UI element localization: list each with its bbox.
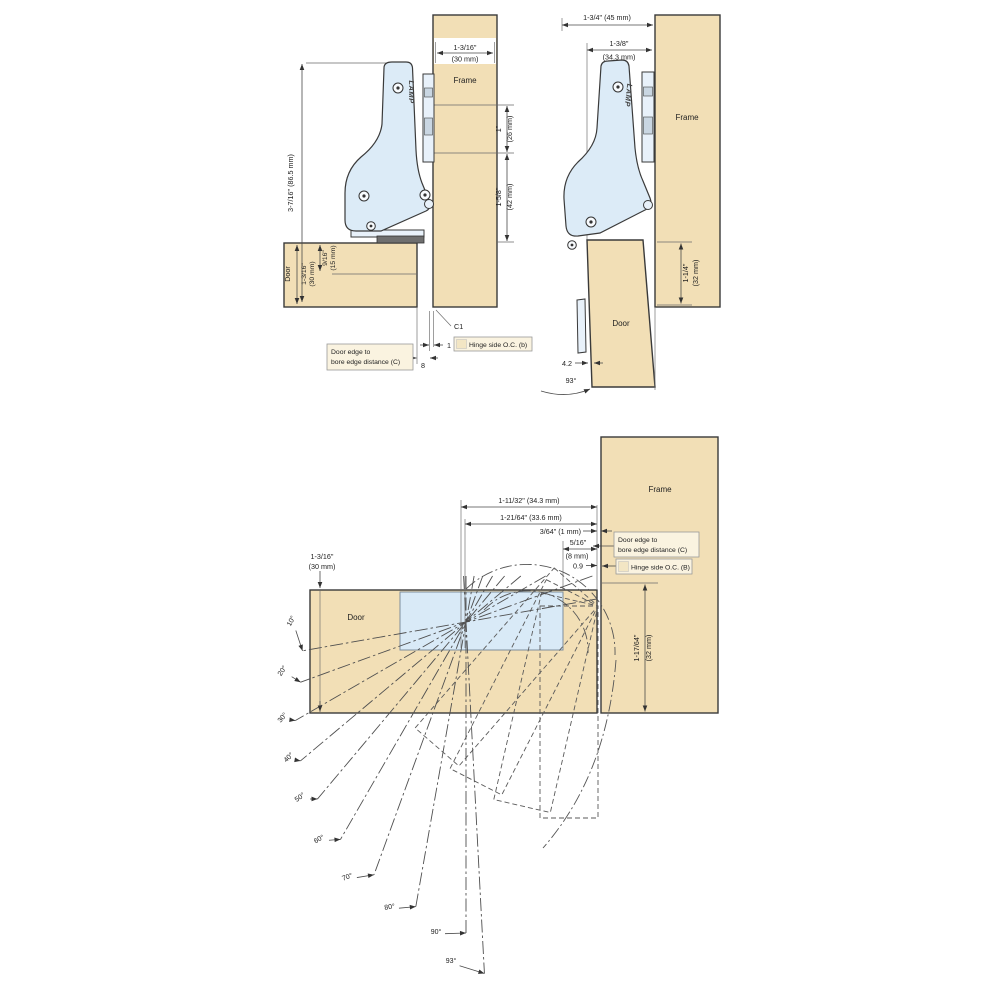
fan-angle-label: 20° <box>276 664 289 677</box>
fan-leader <box>460 966 485 974</box>
dim-arm-height: 3-7/16" (86.5 mm) <box>286 154 295 212</box>
dim-bore-distance-value: 8 <box>421 361 425 370</box>
hinge-arm <box>564 60 651 236</box>
dim-frame-width-in: 1-3/16" <box>454 43 477 52</box>
cup-ref-label: C1 <box>454 322 463 331</box>
door-edge-box-line2: bore edge distance (C) <box>618 547 687 554</box>
hinge-recess <box>400 592 563 650</box>
door-panel-open <box>587 240 655 387</box>
dim-frame-below-mm: (32 mm) <box>644 635 653 662</box>
diagram-canvas: 1-3/16" (30 mm) Frame LAMP <box>0 0 1000 1000</box>
fan-angle-label: 30° <box>276 711 289 724</box>
dim-door-thickness-mm: (30 mm) <box>309 261 316 286</box>
fan-angle-label: 60° <box>313 833 326 845</box>
hinge-cup <box>377 236 424 243</box>
dim-bore-depth-in: 9/16" <box>322 250 329 266</box>
dim-door-thickness-mm: (30 mm) <box>309 562 336 571</box>
frame-label: Frame <box>675 113 699 122</box>
dim-below-frame-mm: (32 mm) <box>691 260 700 287</box>
frame-label: Frame <box>648 485 672 494</box>
door-edge-box-line2: bore edge distance (C) <box>331 359 400 366</box>
dim-hole-spacing-in: 1" <box>494 125 503 132</box>
door-edge-distance-box <box>327 344 413 370</box>
dim-below-frame-in: 1-1/4" <box>681 263 690 282</box>
hinge-knuckle <box>425 200 434 209</box>
door-edge-box-line1: Door edge to <box>618 537 658 544</box>
dim-33-6: 1-21/64" (33.6 mm) <box>500 513 562 522</box>
fan-angle-label: 70° <box>341 871 354 882</box>
dim-34-3: 1-11/32" (34.3 mm) <box>498 496 559 505</box>
frame-label: Frame <box>453 76 477 85</box>
dim-0-9: 0.9 <box>573 562 583 571</box>
hinge-knuckle <box>644 201 653 210</box>
dim-8mm-mm: (8 mm) <box>566 552 589 561</box>
dim-overlay-width: 1-3/4" (45 mm) <box>583 13 631 22</box>
dim-frame-width-mm: (30 mm) <box>452 55 479 64</box>
hinge-open: LAMP <box>564 60 654 249</box>
door-label: Door <box>612 319 630 328</box>
fan-leader <box>445 933 466 934</box>
dim-8mm-in: 5/16" <box>570 538 587 547</box>
door-label: Door <box>283 266 292 282</box>
dim-gap-value: 1 <box>447 341 451 350</box>
hinge-side-oc-label: Hinge side O.C. (B) <box>631 565 690 572</box>
fan-angle-label: 50° <box>293 791 306 804</box>
fan-leader <box>296 631 303 651</box>
dim-protrusion: 4.2 <box>562 359 572 368</box>
dim-door-thickness-in: 1-3/16" <box>311 552 334 561</box>
dim-hole-to-door-mm: (42 mm) <box>505 184 514 211</box>
diagram-closed-section: 1-3/16" (30 mm) Frame LAMP <box>283 15 532 370</box>
dim-hole-spacing-mm: (26 mm) <box>505 116 514 143</box>
hinge-side-oc-label: Hinge side O.C. (b) <box>469 342 527 349</box>
open-angle-label: 93° <box>566 376 577 385</box>
fan-angle-label: 90° <box>431 928 442 936</box>
frame-panel-plan <box>601 437 718 713</box>
hinge-closed: LAMP <box>306 62 434 243</box>
fan-leader <box>329 839 341 840</box>
frame-panel <box>655 15 720 307</box>
fan-leader <box>292 677 301 682</box>
dim-frame-below-in: 1-17/64" <box>632 634 641 661</box>
fan-angle-label: 93° <box>446 957 457 965</box>
hinge-mounting-diagram: 1-3/16" (30 mm) Frame LAMP <box>0 0 1000 1000</box>
open-angle-arc <box>541 389 590 395</box>
dim-bore-depth-mm: (15 mm) <box>330 245 337 270</box>
hinge-arm <box>345 62 430 231</box>
dim-door-thickness-in: 1-3/16" <box>301 263 308 285</box>
dim-bore-center-in: 1-3/8" <box>610 39 629 48</box>
dim-hole-to-door-in: 1-5/8" <box>494 187 503 206</box>
dim-1mm: 3/64" (1 mm) <box>540 527 581 536</box>
fan-angle-label: 80° <box>384 902 396 912</box>
door-edge-box-line1: Door edge to <box>331 349 371 356</box>
hinge-cup-open <box>577 299 586 353</box>
diagram-open-section: Frame 1-3/4" (45 mm) 1-3/8" (34.3 mm) Do… <box>541 13 720 395</box>
door-label: Door <box>347 613 365 622</box>
fan-angle-label: 40° <box>282 751 295 764</box>
diagram-swing-plan: Frame Door 10°20°30°40°50°60°70°80°90°93… <box>276 437 718 974</box>
brand-logo: LAMP <box>407 80 416 104</box>
fan-leader <box>399 907 416 909</box>
fan-leader <box>357 875 374 878</box>
fan-angle-label: 10° <box>285 614 297 627</box>
